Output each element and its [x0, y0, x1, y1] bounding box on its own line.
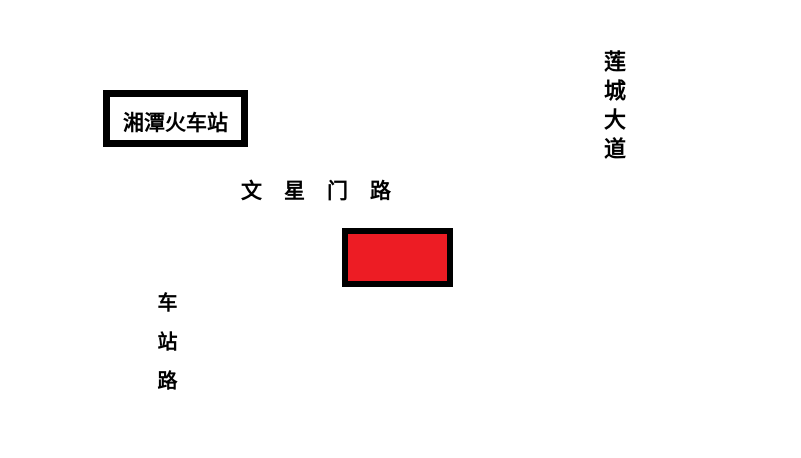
- station-box: 湘潭火车站: [103, 90, 248, 147]
- wenxingmen-road-label: 文星门路: [241, 175, 413, 205]
- chezhan-road-label: 车站路: [152, 292, 181, 409]
- map-canvas: 湘潭火车站 文星门路 莲城大道 车站路: [0, 0, 801, 458]
- station-label: 湘潭火车站: [123, 107, 228, 137]
- liancheng-avenue-label: 莲城大道: [596, 50, 628, 166]
- location-marker: [342, 228, 453, 287]
